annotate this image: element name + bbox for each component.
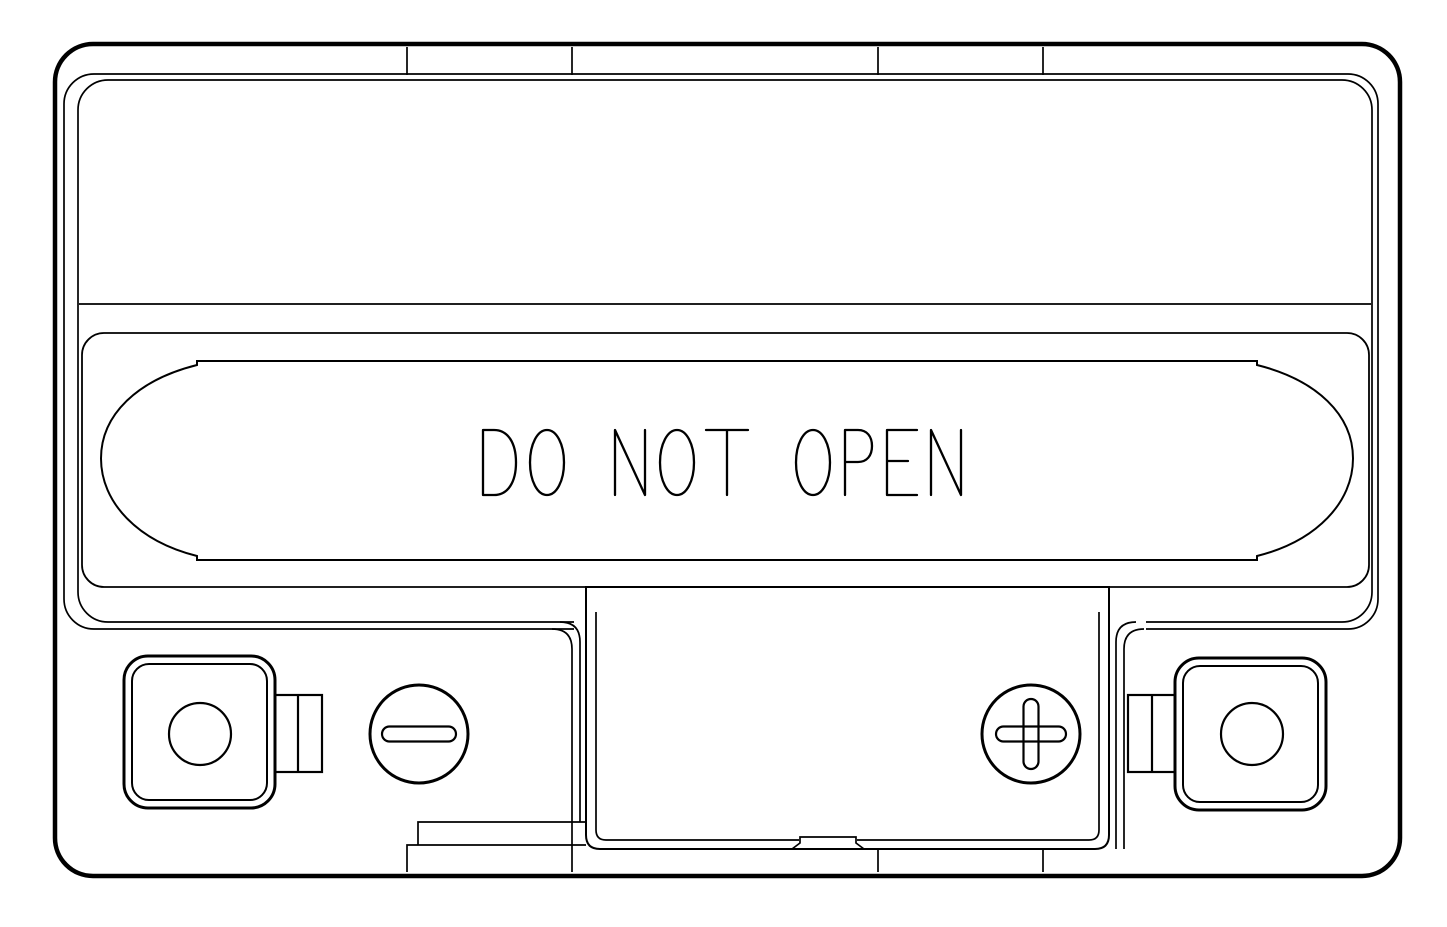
- negative-post-inner: [132, 664, 267, 800]
- positive-post-inner: [1183, 666, 1318, 802]
- positive-post-bore: [1221, 703, 1283, 765]
- left-wing-edge-outer: [552, 629, 572, 845]
- panel-clearing: [574, 614, 1146, 848]
- left-step-lower: [407, 845, 586, 872]
- label-glyph: [887, 430, 917, 495]
- top-face-outline: [78, 80, 1372, 622]
- label-text: [483, 430, 961, 495]
- left-step-upper: [418, 822, 586, 845]
- label-glyph: [530, 430, 564, 495]
- negative-terminal: [124, 656, 468, 808]
- minus-icon: [370, 685, 468, 783]
- label-glyph: [660, 430, 694, 495]
- battery-technical-drawing: [0, 0, 1447, 927]
- shoulder-outline: [64, 74, 1378, 629]
- negative-screw-cap: [370, 685, 468, 783]
- top-vent-strip: [407, 47, 1043, 75]
- drawing-canvas: [0, 0, 1447, 927]
- label-glyph: [483, 430, 516, 495]
- label-glyph: [931, 430, 961, 495]
- negative-post-outline: [124, 656, 275, 808]
- label-band-outline: [82, 333, 1369, 587]
- label-glyph: [845, 430, 872, 495]
- label-glyph: [796, 430, 830, 495]
- label-glyph: [706, 430, 748, 495]
- minus-slot: [382, 727, 456, 742]
- negative-post-bore: [169, 703, 231, 765]
- label-glyph: [615, 430, 645, 495]
- positive-post-outline: [1175, 658, 1326, 810]
